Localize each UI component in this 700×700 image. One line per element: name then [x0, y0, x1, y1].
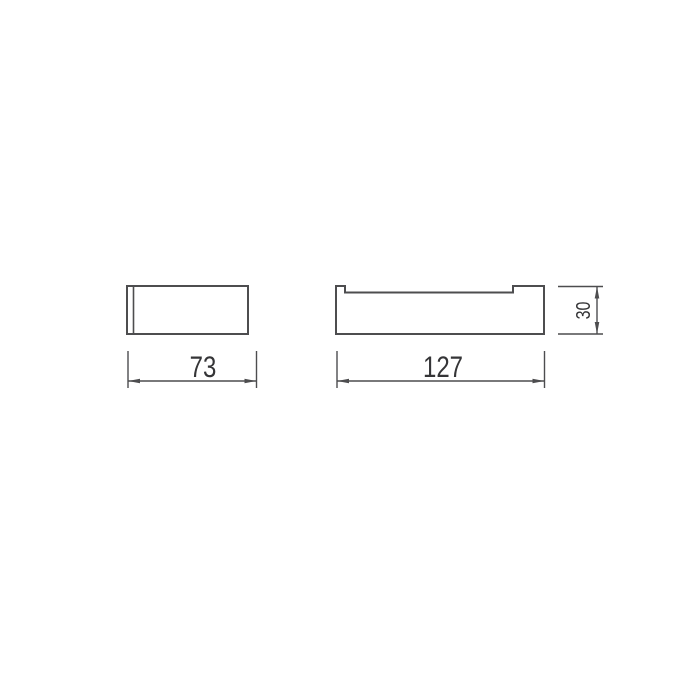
dimension-label-front-width: 73	[190, 349, 217, 383]
dimension-label-side-width: 127	[423, 349, 463, 383]
front-view-outline	[127, 286, 248, 334]
arrowhead-top	[595, 287, 600, 299]
technical-drawing-canvas: 73 127 30	[0, 0, 700, 700]
dimension-front-width: 73	[128, 349, 257, 388]
dimension-side-height: 30	[558, 287, 603, 335]
arrowhead-bottom	[595, 322, 600, 334]
arrowhead-right	[245, 379, 257, 384]
side-view	[336, 286, 544, 334]
technical-drawing: 73 127 30	[0, 0, 700, 700]
dimension-label-side-height: 30	[572, 302, 594, 320]
side-view-outline	[336, 286, 544, 334]
front-view	[127, 286, 248, 334]
arrowhead-left	[128, 379, 140, 384]
arrowhead-left	[337, 379, 349, 384]
arrowhead-right	[533, 379, 545, 384]
dimension-side-width: 127	[337, 349, 545, 388]
